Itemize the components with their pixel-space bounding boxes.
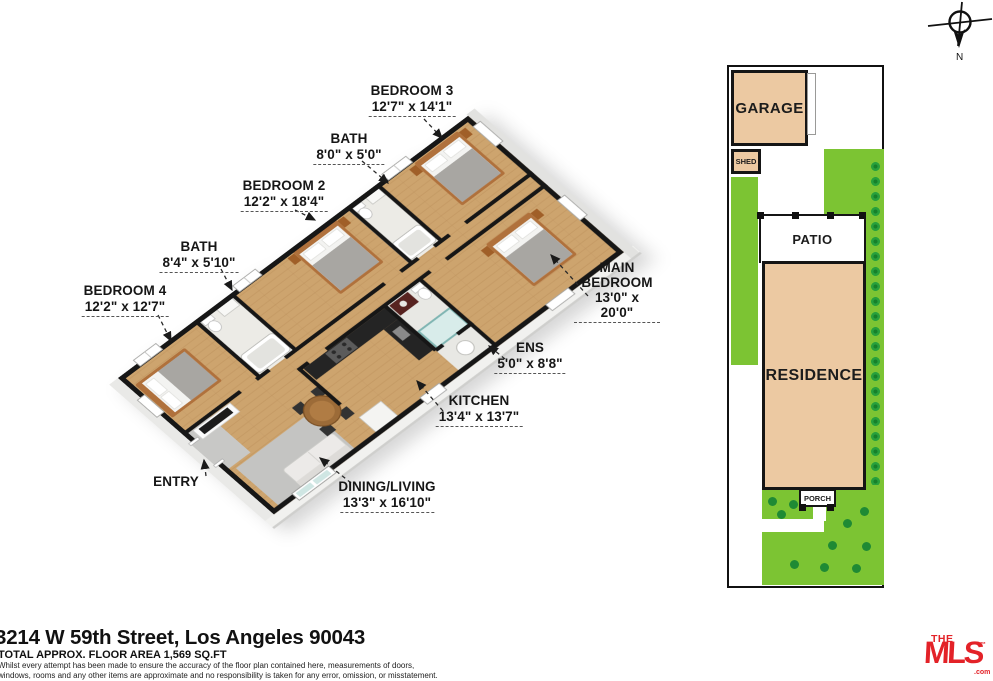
label-bedroom2: BEDROOM 2 12'2" x 18'4" [241,179,328,212]
room-dims: 13'0" x 20'0" [574,290,660,323]
the-mls-logo: THE MLS ™ .com [916,633,992,679]
room-dims: 13'3" x 16'10" [340,495,434,514]
room-dims: 13'4" x 13'7" [436,409,523,428]
patio-label: PATIO [792,232,832,247]
room-name: MAIN BEDROOM [574,261,660,290]
porch-label: PORCH [804,494,831,503]
disclaimer-line: Whilst every attempt has been made to en… [0,661,438,671]
compass-north-icon: N [925,0,993,64]
label-bedroom3: BEDROOM 3 12'7" x 14'1" [369,84,456,117]
room-name: KITCHEN [436,394,523,409]
residence: RESIDENCE [762,261,866,490]
room-dims: 12'2" x 18'4" [241,194,328,213]
room-name: ENS [494,341,565,356]
label-kitchen: KITCHEN 13'4" x 13'7" [436,394,523,427]
compass-n-label: N [956,52,963,63]
label-entry: ENTRY [153,475,199,490]
residence-label: RESIDENCE [766,367,863,385]
patio-posts [757,212,764,219]
room-name: ENTRY [153,475,199,490]
room-name: DINING/LIVING [338,480,435,495]
lawn-shrubs-icon [768,497,777,506]
label-bedroom4: BEDROOM 4 12'2" x 12'7" [82,284,169,317]
porch-posts [799,504,806,511]
logo-trademark: ™ [980,642,986,648]
floor-plan-drawing [118,116,624,515]
patio: PATIO [759,214,866,263]
room-name: BATH [313,132,384,147]
shrub-row-icon [869,159,882,485]
garage-label: GARAGE [735,100,803,117]
label-main-bedroom: MAIN BEDROOM 13'0" x 20'0" [574,261,660,323]
label-ensuite: ENS 5'0" x 8'8" [494,341,565,374]
room-dims: 12'7" x 14'1" [369,99,456,118]
logo-dotcom: .com [974,669,990,676]
room-dims: 12'2" x 12'7" [82,299,169,318]
garage: GARAGE [731,70,808,146]
floor-plan-page: N [0,0,993,681]
floor-area-total: TOTAL APPROX. FLOOR AREA 1,569 SQ.FT [0,649,227,661]
site-plan: PATIO GARAGE SHED RESIDENCE PORCH [727,65,884,588]
label-bath-top: BATH 8'0" x 5'0" [313,132,384,165]
side-yard-left [731,177,758,365]
disclaimer-line: windows, rooms and any other items are a… [0,671,438,681]
shed: SHED [731,149,761,174]
room-name: BEDROOM 3 [369,84,456,99]
property-address: 3214 W 59th Street, Los Angeles 90043 [0,626,365,650]
room-name: BATH [160,240,239,255]
floor-plan-3d [118,116,624,515]
garage-door [807,73,816,135]
label-bath-left: BATH 8'4" x 5'10" [160,240,239,273]
logo-mls: MLS [923,635,983,671]
label-dining-living: DINING/LIVING 13'3" x 16'10" [338,480,435,513]
room-name: BEDROOM 2 [241,179,328,194]
room-dims: 5'0" x 8'8" [494,356,565,375]
shed-label: SHED [736,157,757,166]
room-name: BEDROOM 4 [82,284,169,299]
walkway [762,519,824,532]
room-dims: 8'0" x 5'0" [313,147,384,166]
room-dims: 8'4" x 5'10" [160,255,239,274]
disclaimer: Whilst every attempt has been made to en… [0,661,438,681]
